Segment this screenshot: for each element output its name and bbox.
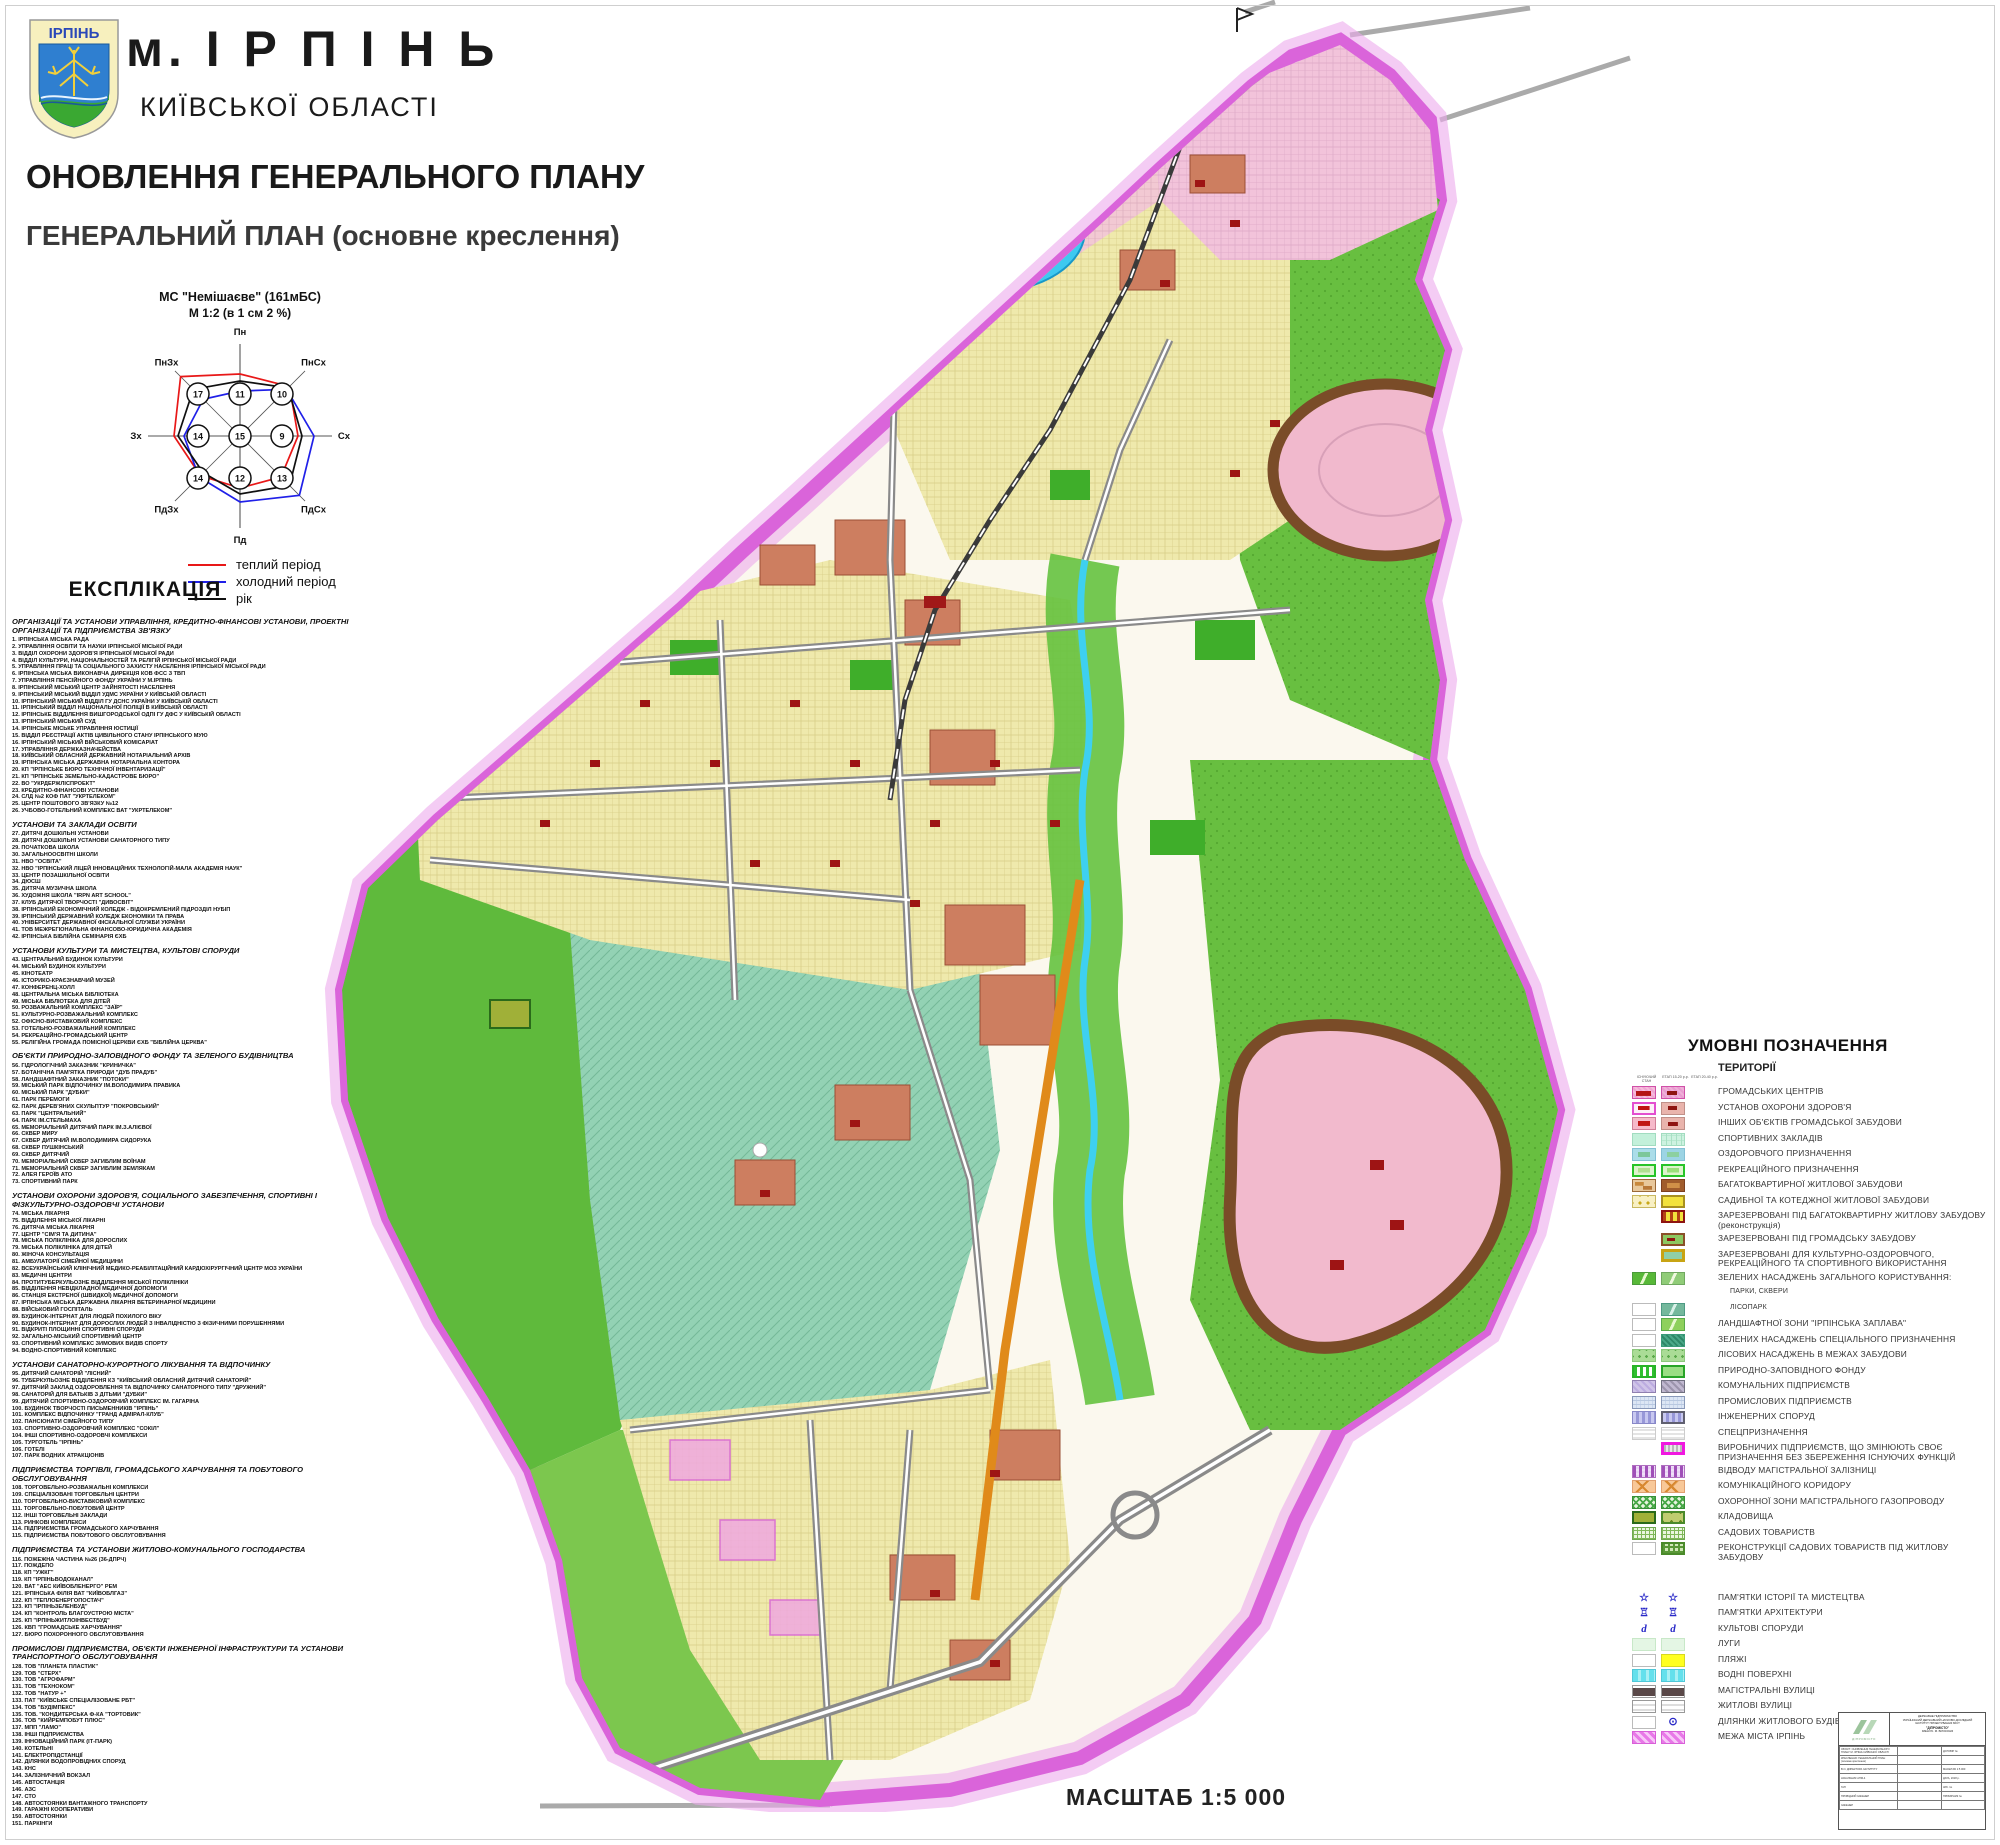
legend-swatch xyxy=(1632,1480,1656,1493)
legend-row: ♖♖ПАМ'ЯТКИ АРХІТЕКТУРИ xyxy=(1632,1607,1994,1620)
stamp-org: ДЕРЖАВНЕ ПІДПРИЄМСТВОУКРАЇНСЬКИЙ ДЕРЖАВН… xyxy=(1890,1713,1985,1745)
lake xyxy=(895,168,1085,292)
legend-label: МАГІСТРАЛЬНІ ВУЛИЦІ xyxy=(1718,1685,1815,1696)
windrose-value: 9 xyxy=(279,432,284,442)
legend-row: САДИБНОЇ ТА КОТЕДЖНОЇ ЖИТЛОВОЇ ЗАБУДОВИ xyxy=(1632,1195,1994,1208)
legend-label: ГРОМАДСЬКИХ ЦЕНТРІВ xyxy=(1718,1086,1824,1097)
stamp-cell: МАСШТАБ 1:5 000 xyxy=(1941,1765,1984,1774)
stamp-cell: ПРОВІДНИЙ ІНЖЕНЕР xyxy=(1840,1792,1898,1801)
stamp-cell: АРК. № xyxy=(1941,1783,1984,1792)
legend-swatch xyxy=(1661,1669,1685,1682)
legend-swatch xyxy=(1661,1480,1685,1493)
map-scale-label: МАСШТАБ 1:5 000 xyxy=(1066,1784,1286,1811)
stamp-cell: ДОГОВІР № xyxy=(1941,1747,1984,1756)
legend-label: ЗЕЛЕНИХ НАСАДЖЕНЬ ЗАГАЛЬНОГО КОРИСТУВАНН… xyxy=(1718,1272,1951,1283)
stamp-cell: ГАП xyxy=(1840,1783,1898,1792)
legend-label: ОХОРОННОЇ ЗОНИ МАГІСТРАЛЬНОГО ГАЗОПРОВОД… xyxy=(1718,1496,1944,1507)
legend-swatch xyxy=(1661,1465,1685,1478)
legend-row: УСТАНОВ ОХОРОНИ ЗДОРОВ'Я xyxy=(1632,1102,1994,1115)
legend-swatch xyxy=(1661,1380,1685,1393)
legend-label: ВІДВОДУ МАГІСТРАЛЬНОЇ ЗАЛІЗНИЦІ xyxy=(1718,1465,1876,1476)
legend-label: ЗАРЕЗЕРВОВАНІ ДЛЯ КУЛЬТУРНО-ОЗДОРОВЧОГО,… xyxy=(1718,1249,1994,1269)
legend-swatch xyxy=(1661,1249,1685,1262)
legend-swatch xyxy=(1661,1396,1685,1409)
legend-swatch xyxy=(1661,1210,1685,1223)
legend-swatch xyxy=(1632,1731,1656,1744)
legend-arch-icon: ♖ xyxy=(1632,1607,1656,1620)
legend-swatch xyxy=(1632,1133,1656,1146)
legend-label: ЗЕЛЕНИХ НАСАДЖЕНЬ СПЕЦІАЛЬНОГО ПРИЗНАЧЕН… xyxy=(1718,1334,1956,1345)
stamp-cell xyxy=(1898,1765,1942,1774)
pond xyxy=(862,285,914,315)
legend-swatch xyxy=(1632,1272,1656,1285)
legend-swatch xyxy=(1661,1511,1685,1524)
stamp-cell: ІНЖЕНЕР xyxy=(1840,1801,1898,1810)
stamp-cell: НАЧАЛЬНИК АПМ-4 xyxy=(1840,1774,1898,1783)
legend-row: ІНЖЕНЕРНИХ СПОРУД xyxy=(1632,1411,1994,1424)
legend-swatch xyxy=(1632,1496,1656,1509)
coat-of-arms: ІРПІНЬ xyxy=(26,16,122,142)
legend-swatch xyxy=(1632,1427,1656,1440)
legend-swatch xyxy=(1661,1334,1685,1347)
legend-row: ПЛЯЖІ xyxy=(1632,1654,1994,1667)
legend-row: РЕКРЕАЦІЙНОГО ПРИЗНАЧЕННЯ xyxy=(1632,1164,1994,1177)
legend-row: ddКУЛЬТОВІ СПОРУДИ xyxy=(1632,1623,1994,1636)
legend-label: ВИРОБНИЧИХ ПІДПРИЄМСТВ, ЩО ЗМІНЮЮТЬ СВОЄ… xyxy=(1718,1442,1994,1462)
legend-label: ОЗДОРОВЧОГО ПРИЗНАЧЕННЯ xyxy=(1718,1148,1851,1159)
legend-swatch xyxy=(1632,1638,1656,1651)
stamp-cell xyxy=(1898,1801,1942,1810)
legend-row: ВІДВОДУ МАГІСТРАЛЬНОЇ ЗАЛІЗНИЦІ xyxy=(1632,1465,1994,1478)
legend-row: ЛІСОПАРК xyxy=(1632,1303,1994,1316)
explication-heading: ЕКСПЛІКАЦІЯ xyxy=(30,578,260,602)
legend-swatch xyxy=(1632,1179,1656,1192)
legend-row: ЗЕЛЕНИХ НАСАДЖЕНЬ СПЕЦІАЛЬНОГО ПРИЗНАЧЕН… xyxy=(1632,1334,1994,1347)
legend-label: РЕКРЕАЦІЙНОГО ПРИЗНАЧЕННЯ xyxy=(1718,1164,1859,1175)
legend-rows: ГРОМАДСЬКИХ ЦЕНТРІВУСТАНОВ ОХОРОНИ ЗДОРО… xyxy=(1632,1086,1994,1744)
legend-label: ПРИРОДНО-ЗАПОВІДНОГО ФОНДУ xyxy=(1718,1365,1866,1376)
legend-swatch xyxy=(1661,1179,1685,1192)
windrose-direction-label: ПдЗх xyxy=(154,505,179,516)
legend-swatch xyxy=(1632,1380,1656,1393)
stamp-org-lines: ДЕРЖАВНЕ ПІДПРИЄМСТВОУКРАЇНСЬКИЙ ДЕРЖАВН… xyxy=(1892,1715,1983,1726)
stamp-cell: ДАТА, 2018 р. xyxy=(1941,1774,1984,1783)
legend-row: КЛАДОВИЩА xyxy=(1632,1511,1994,1524)
legend-row: ЛАНДШАФТНОЇ ЗОНИ "ІРПІНСЬКА ЗАПЛАВА" xyxy=(1632,1318,1994,1331)
coat-text: ІРПІНЬ xyxy=(49,25,100,42)
legend-row: ПРОМИСЛОВИХ ПІДПРИЄМСТВ xyxy=(1632,1396,1994,1409)
stamp-cell: ПРИМІРНИК № xyxy=(1941,1792,1984,1801)
explication-item: 151. ПАРКІНГИ xyxy=(12,1821,364,1828)
legend-swatch xyxy=(1661,1365,1685,1378)
legend-swatch xyxy=(1661,1233,1685,1246)
legend-row: СПОРТИВНИХ ЗАКЛАДІВ xyxy=(1632,1133,1994,1146)
legend-label: ПРОМИСЛОВИХ ПІДПРИЄМСТВ xyxy=(1718,1396,1852,1407)
legend-label: ЗАРЕЗЕРВОВАНІ ПІД ГРОМАДСЬКУ ЗАБУДОВУ xyxy=(1718,1233,1916,1244)
windrose-legend-line xyxy=(188,564,226,566)
windrose-direction-label: Пн xyxy=(234,327,247,338)
legend-swatch xyxy=(1632,1442,1656,1455)
legend-label: КОМУНІКАЦІЙНОГО КОРИДОРУ xyxy=(1718,1480,1851,1491)
windrose-value: 14 xyxy=(193,432,203,442)
legend-row: ОХОРОННОЇ ЗОНИ МАГІСТРАЛЬНОГО ГАЗОПРОВОД… xyxy=(1632,1496,1994,1509)
legend-swatch xyxy=(1661,1411,1685,1424)
legend-swatch xyxy=(1632,1654,1656,1667)
legend-row: ЗАРЕЗЕРВОВАНІ ПІД ГРОМАДСЬКУ ЗАБУДОВУ xyxy=(1632,1233,1994,1246)
legend-column-header: ЕТАП 15-20 р.р. xyxy=(1661,1076,1690,1084)
legend-swatch xyxy=(1661,1638,1685,1651)
legend-swatch xyxy=(1661,1685,1685,1698)
legend-swatch xyxy=(1661,1349,1685,1362)
legend-label: ІНЖЕНЕРНИХ СПОРУД xyxy=(1718,1411,1815,1422)
legend-row: ГРОМАДСЬКИХ ЦЕНТРІВ xyxy=(1632,1086,1994,1099)
legend-swatch xyxy=(1661,1086,1685,1099)
stamp-cell: КРЕСЛЕННЯ: ГЕНЕРАЛЬНИЙ ПЛАН (основне кре… xyxy=(1840,1756,1898,1765)
legend-swatch xyxy=(1632,1334,1656,1347)
legend-label: БАГАТОКВАРТИРНОЇ ЖИТЛОВОЇ ЗАБУДОВИ xyxy=(1718,1179,1903,1190)
legend-swatch xyxy=(1632,1349,1656,1362)
legend-label: ЛУГИ xyxy=(1718,1638,1740,1649)
stamp-table: ОБ'ЄКТ: ОНОВЛЕННЯ ГЕНЕРАЛЬНОГО ПЛАНУ М. … xyxy=(1839,1746,1985,1810)
legend-column-header: ЕТАП 20-40 р.р. xyxy=(1690,1076,1719,1084)
legend-row: ЛІСОВИХ НАСАДЖЕНЬ В МЕЖАХ ЗАБУДОВИ xyxy=(1632,1349,1994,1362)
legend-label: ПАРКИ, СКВЕРИ xyxy=(1730,1287,1788,1296)
legend-label: КОМУНАЛЬНИХ ПІДПРИЄМСТВ xyxy=(1718,1380,1850,1391)
legend-label: ПАМ'ЯТКИ АРХІТЕКТУРИ xyxy=(1718,1607,1823,1618)
legend-swatch xyxy=(1632,1511,1656,1524)
legend-swatch xyxy=(1632,1102,1656,1115)
legend-label: РЕКОНСТРУКЦІЇ САДОВИХ ТОВАРИСТВ ПІД ЖИТЛ… xyxy=(1718,1542,1994,1562)
legend-star-icon: ☆ xyxy=(1661,1592,1685,1605)
explication-item: 150. АВТОСТОЯНКИ xyxy=(12,1814,364,1821)
legend-row: ЗАРЕЗЕРВОВАНІ ДЛЯ КУЛЬТУРНО-ОЗДОРОВЧОГО,… xyxy=(1632,1249,1994,1269)
windrose-value: 15 xyxy=(235,432,245,442)
stamp-cell xyxy=(1941,1801,1984,1810)
track-oval-north xyxy=(1273,384,1497,556)
legend-swatch xyxy=(1632,1700,1656,1713)
legend-label: ПАМ'ЯТКИ ІСТОРІЇ ТА МИСТЕЦТВА xyxy=(1718,1592,1865,1603)
legend-swatch xyxy=(1661,1272,1685,1285)
legend-swatch xyxy=(1632,1527,1656,1540)
legend-row: ☆☆ПАМ'ЯТКИ ІСТОРІЇ ТА МИСТЕЦТВА xyxy=(1632,1592,1994,1605)
legend-label: МЕЖА МІСТА ІРПІНЬ xyxy=(1718,1731,1805,1742)
legend-row: КОМУНАЛЬНИХ ПІДПРИЄМСТВ xyxy=(1632,1380,1994,1393)
legend-swatch xyxy=(1661,1542,1685,1555)
legend-swatch xyxy=(1661,1148,1685,1161)
legend-swatch xyxy=(1632,1465,1656,1478)
windrose-direction-label: Пд xyxy=(234,535,247,546)
legend-row: МАГІСТРАЛЬНІ ВУЛИЦІ xyxy=(1632,1685,1994,1698)
legend-row: ВИРОБНИЧИХ ПІДПРИЄМСТВ, ЩО ЗМІНЮЮТЬ СВОЄ… xyxy=(1632,1442,1994,1462)
legend-row: ЗЕЛЕНИХ НАСАДЖЕНЬ ЗАГАЛЬНОГО КОРИСТУВАНН… xyxy=(1632,1272,1994,1285)
legend-row: КОМУНІКАЦІЙНОГО КОРИДОРУ xyxy=(1632,1480,1994,1493)
legend-swatch xyxy=(1632,1164,1656,1177)
cemetery xyxy=(490,1000,530,1028)
legend-label: ЗАРЕЗЕРВОВАНІ ПІД БАГАТОКВАРТИРНУ ЖИТЛОВ… xyxy=(1718,1210,1994,1230)
legend-row: ПАРКИ, СКВЕРИ xyxy=(1632,1287,1994,1300)
legend-panel: УМОВНІ ПОЗНАЧЕННЯ ТЕРИТОРІЇ ІСНУЮЧИЙ СТА… xyxy=(1632,1036,1994,1747)
windrose-direction-label: Зх xyxy=(130,431,142,442)
windrose-value: 11 xyxy=(235,390,245,400)
field-dot xyxy=(753,1143,767,1157)
legend-swatch xyxy=(1661,1102,1685,1115)
stamp-cell xyxy=(1898,1747,1942,1756)
legend-swatch xyxy=(1661,1117,1685,1130)
legend-swatch xyxy=(1632,1195,1656,1208)
legend-label: ЖИТЛОВІ ВУЛИЦІ xyxy=(1718,1700,1792,1711)
legend-row: БАГАТОКВАРТИРНОЇ ЖИТЛОВОЇ ЗАБУДОВИ xyxy=(1632,1179,1994,1192)
legend-swatch xyxy=(1661,1496,1685,1509)
legend-column-headers: ІСНУЮЧИЙ СТАНЕТАП 15-20 р.р.ЕТАП 20-40 р… xyxy=(1632,1076,1994,1084)
stamp-cell xyxy=(1898,1774,1942,1783)
legend-label: САДОВИХ ТОВАРИСТВ xyxy=(1718,1527,1815,1538)
legend-swatch xyxy=(1632,1318,1656,1331)
legend-swatch xyxy=(1661,1654,1685,1667)
legend-swatch xyxy=(1661,1427,1685,1440)
legend-label: ІНШИХ ОБ'ЄКТІВ ГРОМАДСЬКОЇ ЗАБУДОВИ xyxy=(1718,1117,1902,1128)
legend-row: ЛУГИ xyxy=(1632,1638,1994,1651)
legend-swatch xyxy=(1661,1164,1685,1177)
legend-cult-icon: d xyxy=(1661,1623,1685,1636)
windrose-value: 17 xyxy=(193,390,203,400)
legend-label: ЛАНДШАФТНОЇ ЗОНИ "ІРПІНСЬКА ЗАПЛАВА" xyxy=(1718,1318,1906,1329)
stamp-cell xyxy=(1941,1756,1984,1765)
legend-arch-icon: ♖ xyxy=(1661,1607,1685,1620)
legend-label: ВОДНІ ПОВЕРХНІ xyxy=(1718,1669,1792,1680)
legend-row: ПРИРОДНО-ЗАПОВІДНОГО ФОНДУ xyxy=(1632,1365,1994,1378)
legend-row: САДОВИХ ТОВАРИСТВ xyxy=(1632,1527,1994,1540)
legend-row: СПЕЦПРИЗНАЧЕННЯ xyxy=(1632,1427,1994,1440)
legend-swatch xyxy=(1661,1303,1685,1316)
legend-row: ЗАРЕЗЕРВОВАНІ ПІД БАГАТОКВАРТИРНУ ЖИТЛОВ… xyxy=(1632,1210,1994,1230)
legend-swatch xyxy=(1632,1233,1656,1246)
stamp-cell xyxy=(1898,1783,1942,1792)
legend-row: ВОДНІ ПОВЕРХНІ xyxy=(1632,1669,1994,1682)
legend-label: КЛАДОВИЩА xyxy=(1718,1511,1773,1522)
legend-swatch xyxy=(1632,1365,1656,1378)
legend-label: ПЛЯЖІ xyxy=(1718,1654,1747,1665)
legend-swatch xyxy=(1661,1195,1685,1208)
legend-title: УМОВНІ ПОЗНАЧЕННЯ xyxy=(1688,1036,1994,1056)
title-block-stamp: ДІПРОМІСТО ДЕРЖАВНЕ ПІДПРИЄМСТВОУКРАЇНСЬ… xyxy=(1838,1712,1986,1830)
stadium xyxy=(788,276,871,348)
legend-label: УСТАНОВ ОХОРОНИ ЗДОРОВ'Я xyxy=(1718,1102,1851,1113)
legend-swatch xyxy=(1661,1318,1685,1331)
legend-swatch xyxy=(1632,1210,1656,1223)
legend-star-icon: ☆ xyxy=(1632,1592,1656,1605)
legend-swatch xyxy=(1632,1303,1656,1316)
legend-swatch xyxy=(1632,1117,1656,1130)
legend-row: ОЗДОРОВЧОГО ПРИЗНАЧЕННЯ xyxy=(1632,1148,1994,1161)
legend-swatch xyxy=(1632,1148,1656,1161)
stamp-cell: В.О. ДИРЕКТОРА ІНСТИТУТУ xyxy=(1840,1765,1898,1774)
railway-station xyxy=(924,596,946,608)
sheet: ІРПІНЬ м. І Р П І Н Ь КИЇВСЬКОЇ ОБЛАСТІ … xyxy=(0,0,2000,1845)
legend-swatch xyxy=(1661,1527,1685,1540)
legend-swatch xyxy=(1632,1716,1656,1729)
windrose-value: 13 xyxy=(277,474,287,484)
legend-row: ІНШИХ ОБ'ЄКТІВ ГРОМАДСЬКОЇ ЗАБУДОВИ xyxy=(1632,1117,1994,1130)
legend-swatch xyxy=(1661,1442,1685,1455)
legend-label: САДИБНОЇ ТА КОТЕДЖНОЇ ЖИТЛОВОЇ ЗАБУДОВИ xyxy=(1718,1195,1929,1206)
legend-swatch xyxy=(1661,1287,1685,1300)
legend-swatch xyxy=(1632,1411,1656,1424)
windrose-value: 10 xyxy=(277,390,287,400)
legend-swatch xyxy=(1632,1287,1656,1300)
legend-cult-icon: d xyxy=(1632,1623,1656,1636)
legend-column-header: ІСНУЮЧИЙ СТАН xyxy=(1632,1076,1661,1084)
legend-swatch xyxy=(1661,1700,1685,1713)
windrose-value: 14 xyxy=(193,474,203,484)
legend-label: КУЛЬТОВІ СПОРУДИ xyxy=(1718,1623,1803,1634)
legend-swatch xyxy=(1661,1133,1685,1146)
legend-swatch xyxy=(1632,1086,1656,1099)
legend-swatch xyxy=(1632,1685,1656,1698)
legend-label: ЛІСОПАРК xyxy=(1730,1303,1767,1312)
legend-label: СПОРТИВНИХ ЗАКЛАДІВ xyxy=(1718,1133,1823,1144)
stamp-cell: ОБ'ЄКТ: ОНОВЛЕННЯ ГЕНЕРАЛЬНОГО ПЛАНУ М. … xyxy=(1840,1747,1898,1756)
legend-row: РЕКОНСТРУКЦІЇ САДОВИХ ТОВАРИСТВ ПІД ЖИТЛ… xyxy=(1632,1542,1994,1562)
stamp-cell xyxy=(1898,1756,1942,1765)
dipromisto-logo: ДІПРОМІСТО xyxy=(1839,1713,1890,1745)
legend-circle-icon: ⊙ xyxy=(1661,1716,1685,1729)
legend-swatch xyxy=(1632,1249,1656,1262)
windrose-value: 12 xyxy=(235,474,245,484)
windrose-direction-label: ПнЗх xyxy=(155,357,180,368)
legend-label: СПЕЦПРИЗНАЧЕННЯ xyxy=(1718,1427,1808,1438)
legend-group-title: ТЕРИТОРІЇ xyxy=(1718,1062,1994,1074)
stamp-cell xyxy=(1898,1792,1942,1801)
legend-label: ЛІСОВИХ НАСАДЖЕНЬ В МЕЖАХ ЗАБУДОВИ xyxy=(1718,1349,1907,1360)
legend-swatch xyxy=(1632,1396,1656,1409)
legend-swatch xyxy=(1661,1731,1685,1744)
legend-swatch xyxy=(1632,1669,1656,1682)
legend-swatch xyxy=(1632,1542,1656,1555)
